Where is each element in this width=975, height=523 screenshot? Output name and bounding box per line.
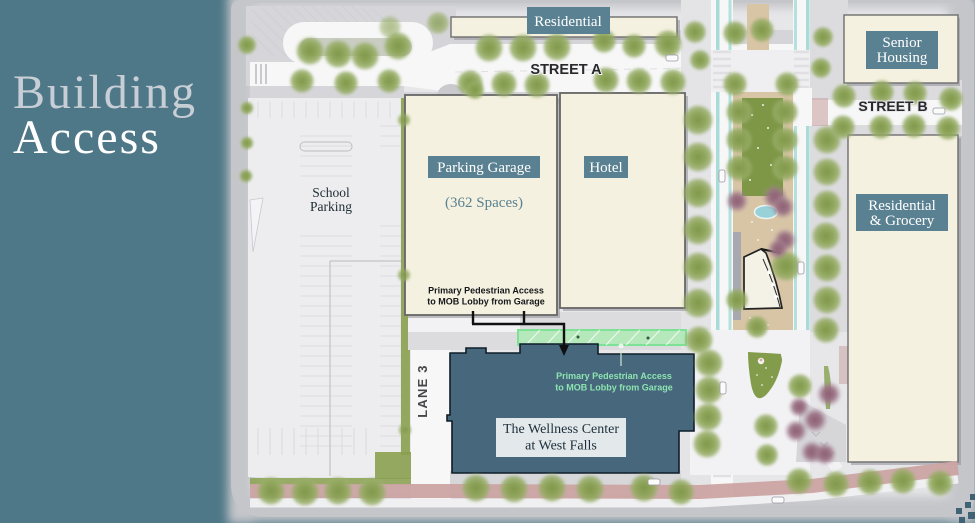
svg-text:Residential: Residential	[534, 14, 602, 30]
svg-text:STREET B: STREET B	[858, 98, 927, 114]
svg-text:Hotel: Hotel	[589, 160, 622, 176]
svg-text:Residential: Residential	[868, 198, 936, 214]
svg-text:Parking Garage: Parking Garage	[437, 160, 531, 176]
svg-text:The Wellness Center: The Wellness Center	[503, 422, 619, 437]
svg-text:LANE 3: LANE 3	[415, 364, 430, 417]
svg-text:& Grocery: & Grocery	[870, 213, 935, 229]
svg-text:Housing: Housing	[877, 50, 928, 66]
svg-text:Parking: Parking	[310, 199, 352, 214]
svg-text:Primary Pedestrian Access: Primary Pedestrian Access	[556, 371, 672, 381]
svg-text:at West Falls: at West Falls	[525, 439, 597, 454]
svg-text:Primary Pedestrian Access: Primary Pedestrian Access	[428, 286, 544, 296]
svg-text:(362 Spaces): (362 Spaces)	[445, 195, 523, 211]
svg-text:School: School	[312, 185, 350, 200]
svg-text:Senior: Senior	[882, 35, 921, 51]
svg-text:to MOB Lobby from Garage: to MOB Lobby from Garage	[427, 297, 545, 307]
svg-text:STREET A: STREET A	[530, 62, 602, 78]
svg-text:to MOB Lobby from Garage: to MOB Lobby from Garage	[555, 383, 673, 393]
